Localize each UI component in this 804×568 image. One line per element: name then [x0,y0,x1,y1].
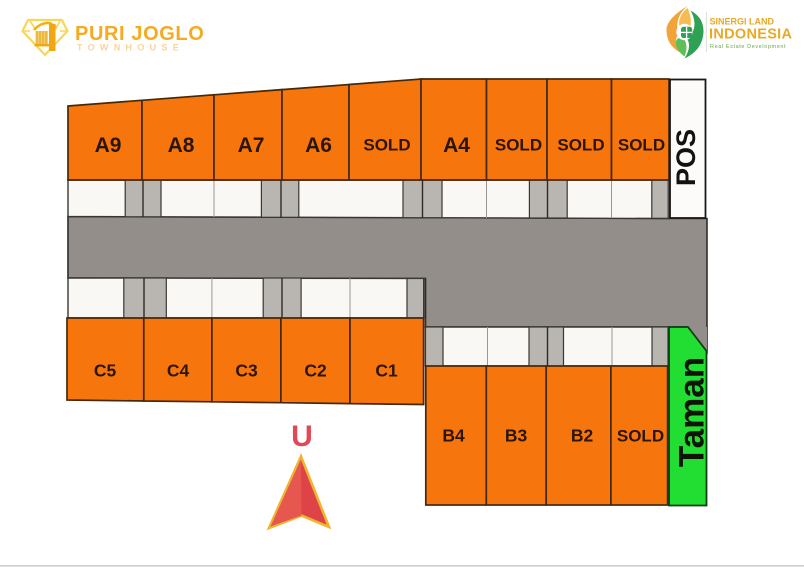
svg-text:A7: A7 [238,134,265,157]
svg-text:A6: A6 [305,134,332,157]
svg-text:SOLD: SOLD [618,136,665,155]
svg-text:INDONESIA: INDONESIA [709,27,792,43]
svg-text:C1: C1 [375,361,398,381]
svg-text:C3: C3 [235,361,258,381]
svg-text:A8: A8 [168,134,195,157]
svg-text:Real Estate Development: Real Estate Development [710,44,786,50]
svg-text:B2: B2 [571,426,594,446]
svg-text:TOWNHOUSE: TOWNHOUSE [77,43,184,53]
svg-text:A9: A9 [95,134,122,157]
svg-text:B3: B3 [505,426,528,446]
svg-text:POS: POS [671,129,701,186]
svg-text:C2: C2 [304,361,327,381]
svg-text:C5: C5 [94,361,117,381]
svg-text:SINERGI LAND: SINERGI LAND [710,17,775,27]
svg-text:Taman: Taman [673,357,712,467]
svg-text:SOLD: SOLD [617,427,664,446]
svg-text:SOLD: SOLD [557,136,604,155]
svg-text:SOLD: SOLD [495,136,542,155]
svg-text:U: U [291,420,313,453]
svg-text:A4: A4 [443,134,470,157]
svg-text:C4: C4 [167,361,190,381]
svg-text:SOLD: SOLD [363,136,410,155]
svg-text:B4: B4 [442,426,465,446]
